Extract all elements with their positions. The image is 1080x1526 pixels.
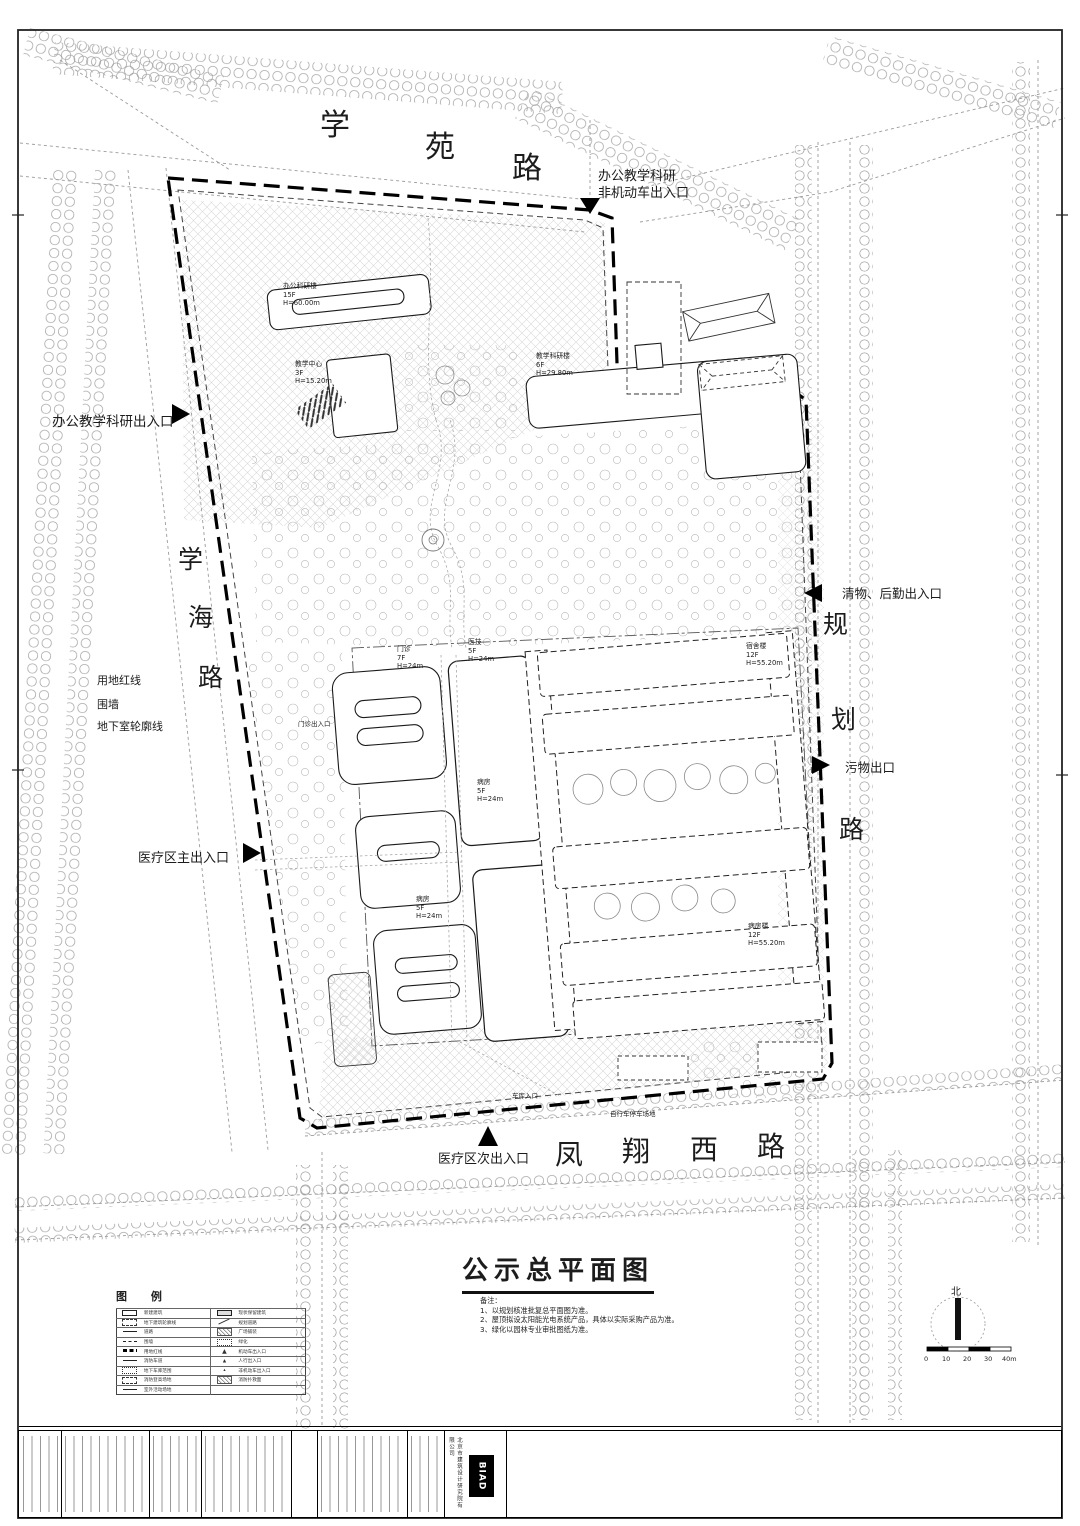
legend-fire-face-icon — [217, 1376, 232, 1384]
titleblock-text-col — [65, 1436, 147, 1512]
arrow-main-entrance-icon — [243, 843, 261, 863]
titleblock-text-col — [411, 1436, 442, 1512]
titleblock-text-col — [205, 1436, 289, 1512]
entrance-label-left: 办公教学科研出入口 — [52, 410, 174, 430]
building-label-ward-tower: 病房楼 12F H=55.20m — [748, 922, 785, 948]
entrance-label-top: 办公教学科研 非机动车出入口 — [598, 168, 689, 202]
arrow-secondary-entrance-icon — [478, 1126, 498, 1146]
building-label-teaching: 教学科研楼 6F H=29.80m — [536, 352, 573, 378]
label-red-line: 用地红线 — [97, 672, 141, 688]
legend-fire-lane-icon — [123, 1360, 137, 1361]
legend-bike-entrance-icon: ▴ — [223, 1368, 225, 1373]
legend-pedestrian-entrance-icon: ▲ — [223, 1359, 226, 1364]
label-wall: 围墙 — [97, 696, 119, 712]
road-fengxiang-char2: 翔 — [622, 1130, 650, 1170]
entrance-label-clean: 清物、后勤出入口 — [842, 583, 942, 602]
scale-tick-40: 40m — [1002, 1355, 1017, 1363]
titleblock-text-col — [23, 1436, 59, 1512]
notes-heading: 备注： — [480, 1296, 502, 1305]
entrance-label-secondary: 医疗区次出入口 — [438, 1148, 529, 1167]
road-guihua-char2: 划 — [831, 700, 856, 736]
entrance-label-main: 医疗区主出入口 — [138, 847, 229, 866]
legend-row: 用地红线 ▲ 机动车出入口 — [117, 1347, 306, 1357]
label-outpatient-entry: 门诊出入口 — [298, 718, 331, 728]
titleblock-divider — [506, 1431, 507, 1517]
label-bike-parking: 自行车停车场地 — [610, 1108, 656, 1118]
road-xueyuan-char1: 学 — [320, 100, 350, 144]
titleblock-divider — [317, 1431, 318, 1517]
exit-label-waste: 污物出口 — [845, 757, 895, 776]
title-block: 北京市建筑设计研究院有限公司 BIAD — [18, 1430, 1062, 1518]
building-label-dorm: 宿舍楼 12F H=55.20m — [746, 642, 783, 668]
legend-outdoor-area-icon — [123, 1389, 137, 1390]
titleblock-text-col — [153, 1436, 199, 1512]
legend-row: 消防登高场地 消防扑救面 — [117, 1376, 306, 1386]
legend-paving-icon — [217, 1328, 232, 1336]
titleblock-divider — [61, 1431, 62, 1517]
legend-row: 道路 广场铺装 — [117, 1328, 306, 1338]
building-label-ward2: 病房 5F H=24m — [416, 895, 442, 921]
legend-red-line-icon — [123, 1349, 137, 1352]
road-xueyuan-char3: 路 — [512, 143, 542, 187]
titleblock-divider — [291, 1431, 292, 1517]
legend-wall-icon — [123, 1341, 137, 1342]
north-arrow — [931, 1297, 985, 1351]
legend-basement-icon — [122, 1319, 137, 1326]
legend-vehicle-entrance-icon: ▲ — [222, 1348, 227, 1355]
titleblock-divider — [201, 1431, 202, 1517]
building-label-office: 办公科研楼 15F H=60.00m — [283, 282, 320, 308]
road-xueyuan-char2: 苑 — [425, 122, 455, 166]
road-fengxiang-char1: 凤 — [555, 1133, 583, 1173]
road-fengxiang-char3: 西 — [690, 1128, 718, 1168]
medical-complex — [304, 631, 826, 1067]
legend-new-building-icon — [122, 1310, 137, 1317]
arrow-top-entrance-icon — [580, 198, 600, 214]
building-label-outpatient: 门诊 7F H=24m — [397, 645, 423, 671]
parking-canopy — [328, 972, 377, 1067]
building-label-center: 教学中心 3F H=15.20m — [295, 360, 332, 386]
notes-block: 备注： 1、以规划核准批复总平面图为准。 2、屋顶拟设太阳能光电系统产品，具体以… — [480, 1296, 679, 1334]
legend-row: 新建建筑 现状保留建筑 — [117, 1309, 306, 1319]
scale-tick-0: 0 — [924, 1355, 928, 1363]
scale-tick-10: 10 — [942, 1355, 950, 1363]
legend-planned-road-icon — [219, 1319, 230, 1325]
label-basement-outline: 地下室轮廓线 — [97, 718, 163, 734]
legend: 图 例 新建建筑 现状保留建筑 地下建筑轮廓线 规划道路 道路 广场铺装 围墙 … — [116, 1288, 308, 1395]
legend-garage-extent-icon — [122, 1367, 137, 1374]
page-title: 公示总平面图 — [462, 1250, 654, 1294]
notes-body: 1、以规划核准批复总平面图为准。 2、屋顶拟设太阳能光电系统产品，具体以实际采购… — [480, 1306, 679, 1335]
road-guihua-char1: 规 — [823, 605, 848, 641]
building-label-medtech: 医技 5F H=24m — [468, 638, 494, 664]
legend-fire-site-icon — [122, 1377, 137, 1384]
drawing-sheet: 学 苑 路 学 海 路 规 划 路 凤 翔 西 路 办公教学科研 非机动车出入口… — [0, 0, 1080, 1526]
biad-logo: BIAD — [469, 1455, 494, 1497]
legend-table: 新建建筑 现状保留建筑 地下建筑轮廓线 规划道路 道路 广场铺装 围墙 绿化 用… — [116, 1308, 306, 1395]
biad-logo-text: BIAD — [477, 1462, 487, 1491]
legend-green-icon — [217, 1339, 232, 1346]
legend-row: 地下车库范围 ▴ 非机动车出入口 — [117, 1366, 306, 1376]
scale-tick-20: 20 — [963, 1355, 971, 1363]
legend-row: 消防车道 ▲ 人行出入口 — [117, 1356, 306, 1366]
scale-bar — [927, 1347, 1011, 1351]
legend-row: 室外活动场地 — [117, 1385, 306, 1395]
legend-existing-building-icon — [217, 1310, 232, 1317]
road-guihua-char3: 路 — [839, 810, 864, 846]
north-label: 北 — [951, 1283, 961, 1298]
titleblock-divider — [444, 1431, 445, 1517]
road-xuehai-char1: 学 — [178, 540, 203, 576]
building-label-ward1: 病房 5F H=24m — [477, 778, 503, 804]
titleblock-divider — [149, 1431, 150, 1517]
road-fengxiang-char4: 路 — [757, 1125, 785, 1165]
legend-row: 地下建筑轮廓线 规划道路 — [117, 1318, 306, 1328]
titleblock-divider — [407, 1431, 408, 1517]
legend-row: 围墙 绿化 — [117, 1337, 306, 1347]
legend-title: 图 例 — [116, 1288, 308, 1304]
label-garage-entry: 车库入口 — [512, 1090, 538, 1100]
legend-road-icon — [123, 1331, 137, 1332]
titleblock-text-col — [321, 1436, 405, 1512]
road-xuehai-char2: 海 — [188, 598, 213, 634]
road-xuehai-char3: 路 — [198, 658, 223, 694]
scale-tick-30: 30 — [984, 1355, 992, 1363]
company-name: 北京市建筑设计研究院有限公司 — [447, 1437, 463, 1513]
